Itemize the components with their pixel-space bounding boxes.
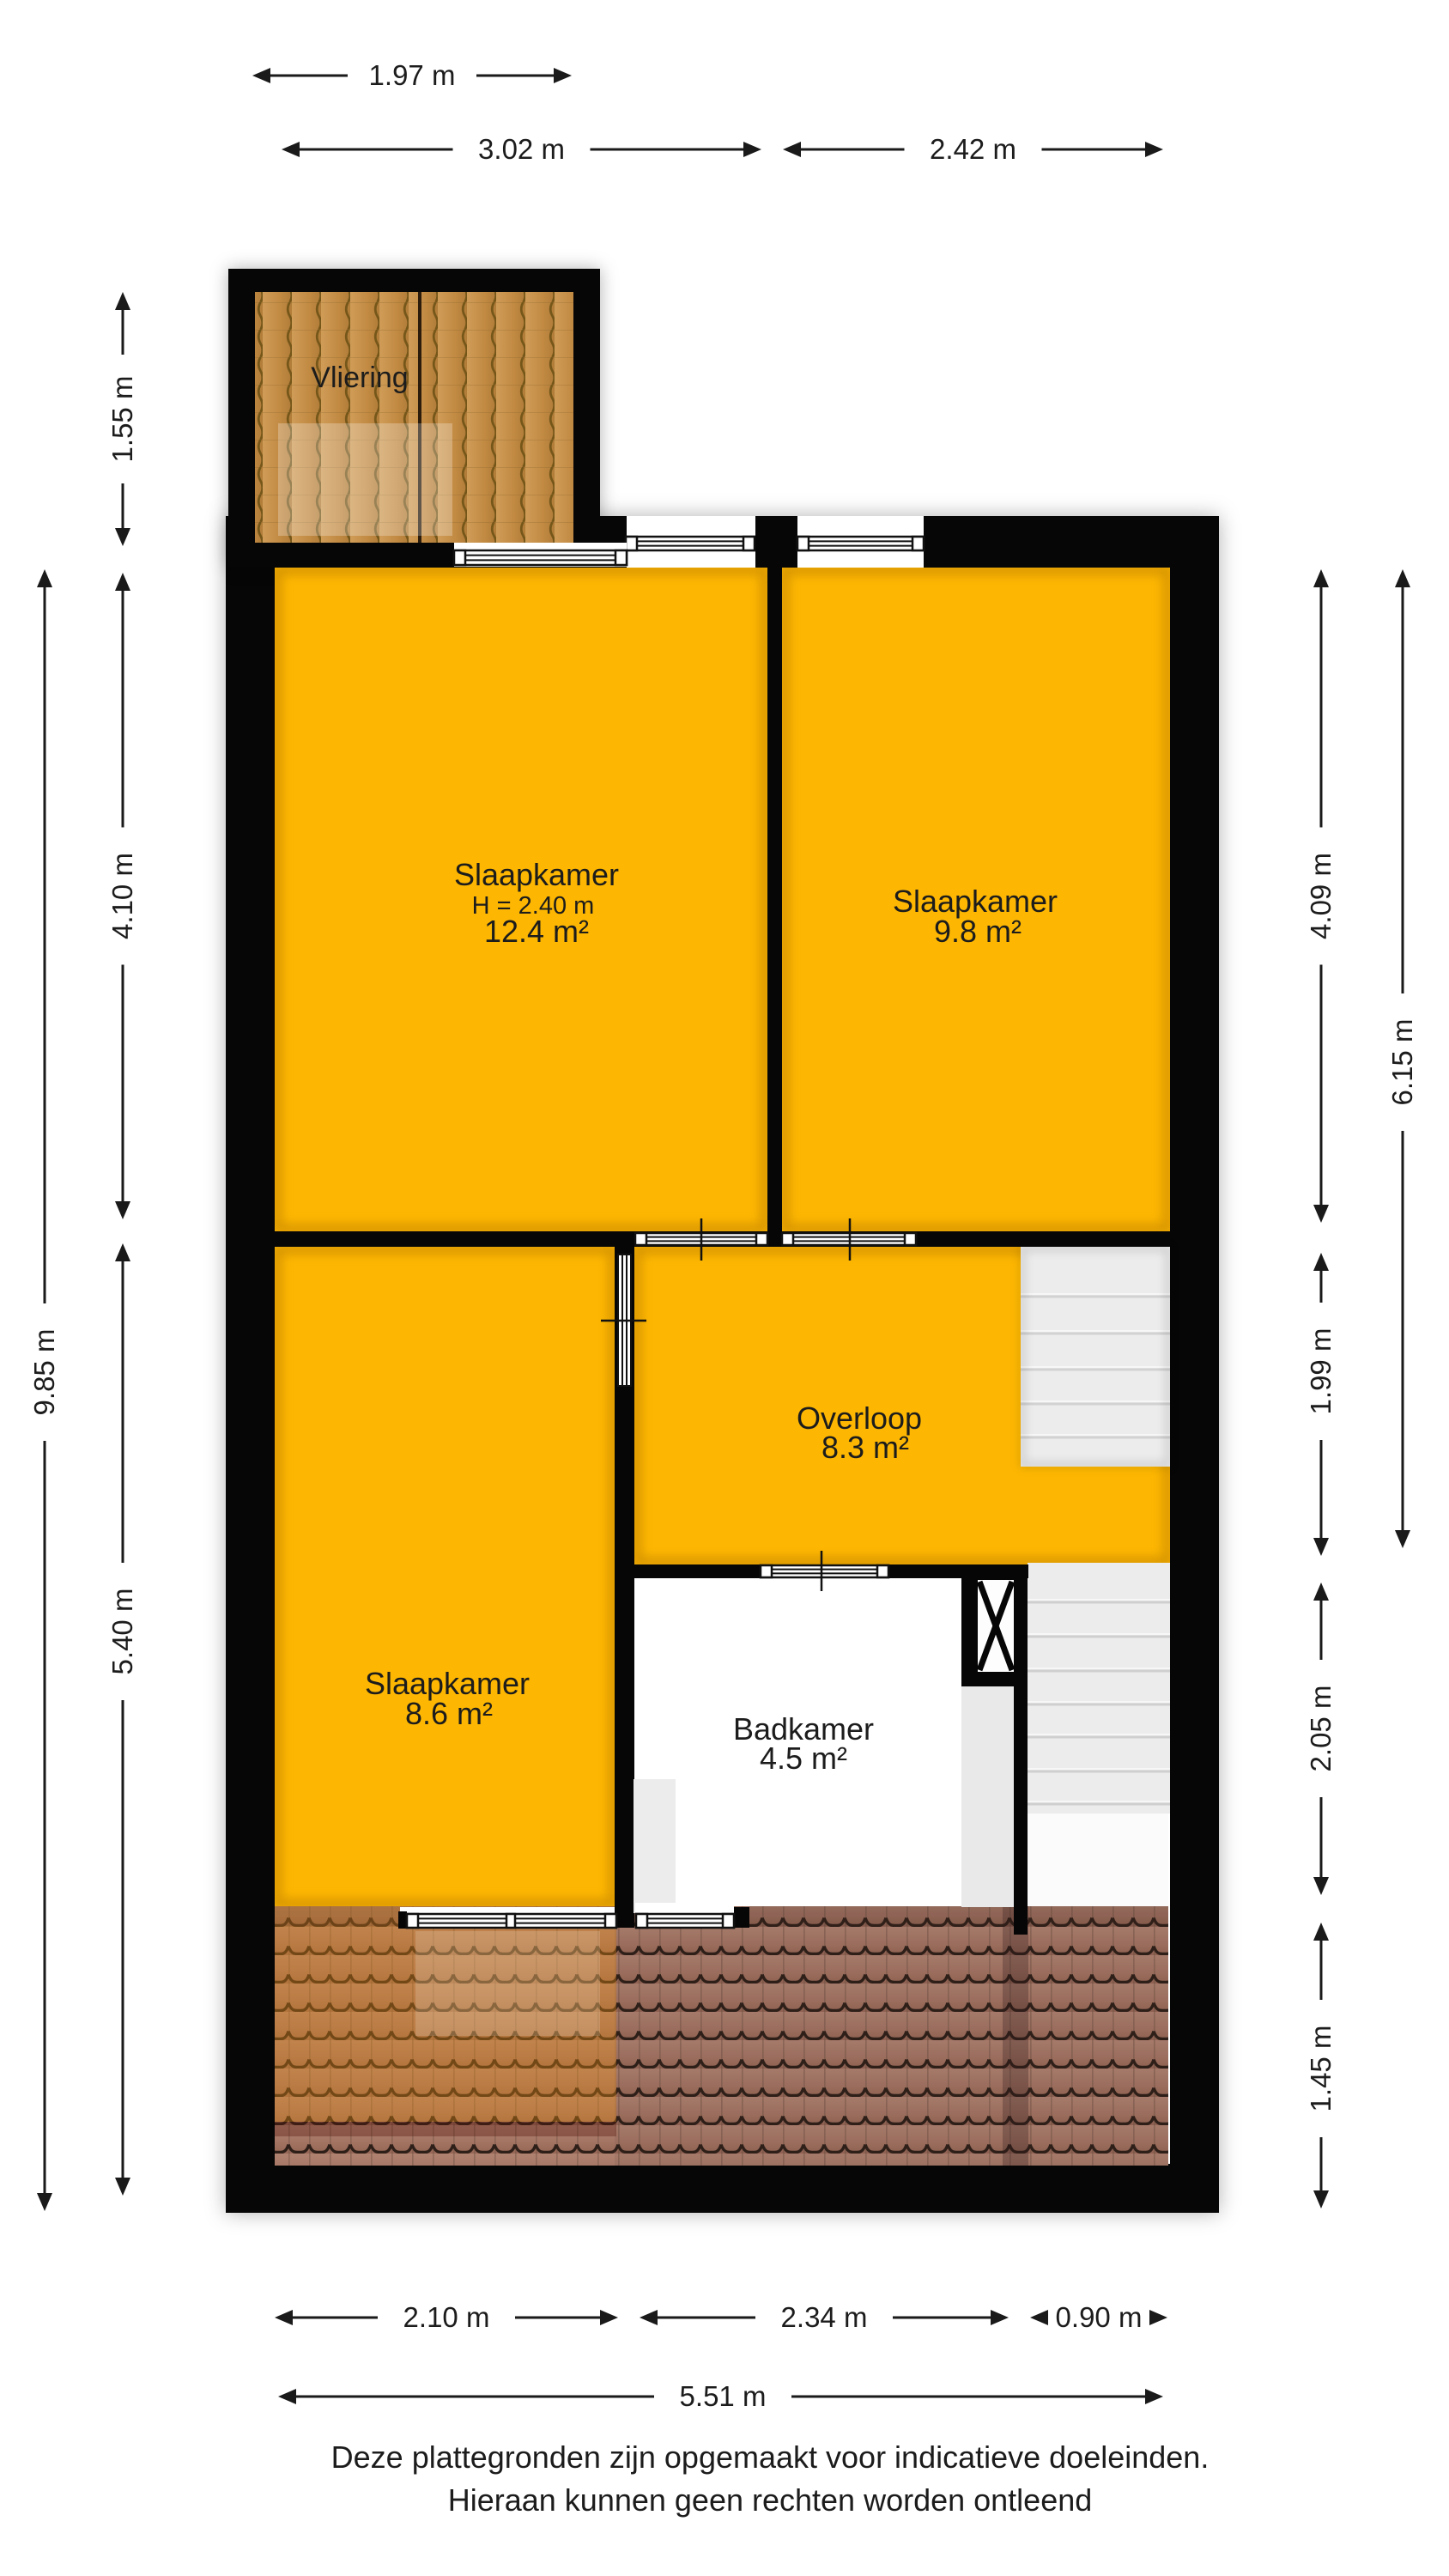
svg-text:2.34 m: 2.34 m [781, 2301, 868, 2333]
svg-text:6.15 m: 6.15 m [1386, 1019, 1418, 1106]
svg-text:1.99 m: 1.99 m [1305, 1328, 1337, 1415]
svg-text:9.8 m²: 9.8 m² [934, 914, 1022, 949]
svg-text:8.3 m²: 8.3 m² [822, 1430, 909, 1465]
svg-text:Hieraan kunnen geen rechten wo: Hieraan kunnen geen rechten worden ontle… [448, 2482, 1093, 2518]
svg-text:Slaapkamer: Slaapkamer [454, 857, 619, 892]
svg-text:12.4 m²: 12.4 m² [484, 914, 589, 949]
svg-text:2.10 m: 2.10 m [403, 2301, 490, 2333]
svg-text:0.90 m: 0.90 m [1056, 2301, 1143, 2333]
svg-text:8.6 m²: 8.6 m² [405, 1696, 493, 1731]
svg-text:4.5 m²: 4.5 m² [760, 1741, 847, 1776]
svg-text:2.05 m: 2.05 m [1305, 1686, 1337, 1772]
svg-text:4.10 m: 4.10 m [106, 853, 138, 939]
svg-text:9.85 m: 9.85 m [28, 1329, 60, 1416]
svg-text:1.97 m: 1.97 m [369, 59, 456, 91]
svg-text:2.42 m: 2.42 m [930, 133, 1016, 165]
svg-text:1.55 m: 1.55 m [106, 376, 138, 463]
svg-text:5.40 m: 5.40 m [106, 1589, 138, 1675]
svg-text:5.51 m: 5.51 m [680, 2380, 767, 2412]
svg-text:Vliering: Vliering [311, 361, 408, 394]
svg-text:4.09 m: 4.09 m [1305, 853, 1337, 939]
svg-text:3.02 m: 3.02 m [478, 133, 565, 165]
svg-text:1.45 m: 1.45 m [1305, 2026, 1337, 2112]
svg-text:Deze plattegronden zijn opgema: Deze plattegronden zijn opgemaakt voor i… [331, 2439, 1210, 2475]
